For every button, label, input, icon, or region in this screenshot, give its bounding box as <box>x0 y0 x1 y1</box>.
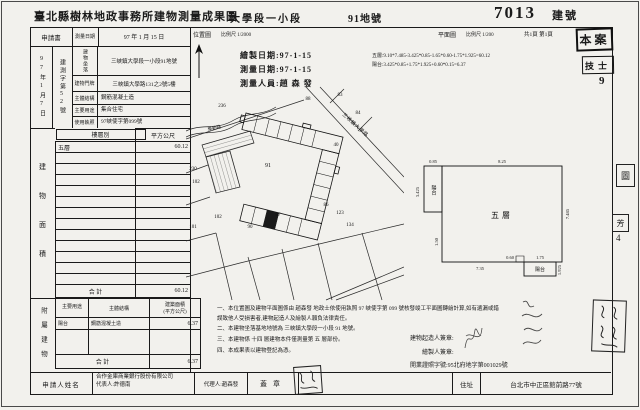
empty-cell <box>56 263 136 274</box>
application-label: 申請書 <box>30 27 73 46</box>
empty-cell <box>136 252 191 263</box>
note-2: 二、本建物坐落基地地號為 三峽鎮大學段一小段 91 地號。 <box>217 325 503 335</box>
empty-cell <box>56 153 136 164</box>
floor-plan: 五層 陽台 陽台 0.85 8.25 3.425 7.485 1.75 1.92… <box>404 144 582 284</box>
annex-use: 陽台 <box>56 318 89 330</box>
svg-text:87: 87 <box>276 213 282 218</box>
lot-number: 91地號 <box>348 10 382 25</box>
page-title: 臺北縣樹林地政事務所建物測量成果圖 <box>34 8 238 24</box>
technician-number: 9 <box>599 75 605 87</box>
office-seal-stamp <box>591 299 627 352</box>
empty-cell <box>56 230 136 241</box>
info-label: 主體結構 <box>72 92 98 104</box>
building-number: 7013 <box>494 3 536 23</box>
empty-cell <box>136 175 191 186</box>
empty-cell <box>56 219 136 230</box>
empty-cell <box>56 186 136 197</box>
empty-cell <box>56 197 136 208</box>
applicant-label: 申請人姓名 <box>30 373 93 394</box>
area-side-label: 建物面積 <box>30 128 55 298</box>
applicant-seal-stamp <box>293 365 323 395</box>
building-area-table: 樓層別 平方公尺 五層 60.12 合 計 60.12 <box>55 128 191 298</box>
parcel-boundaries <box>186 87 404 300</box>
empty-cell <box>136 263 191 274</box>
section-name: 大學段一小段 <box>230 10 302 25</box>
builder-sign-label: 建物起造人簽章: <box>410 333 454 342</box>
info-value: 鋼筋混凝土造 <box>98 92 190 104</box>
survey-date-label: 測量日期 <box>72 27 99 46</box>
svg-text:1.75: 1.75 <box>536 255 545 260</box>
document-sheet: 臺北縣樹林地政事務所建物測量成果圖 大學段一小段 91地號 7013 建號 申請… <box>0 0 640 410</box>
building-number-label: 建號 <box>552 7 578 23</box>
applicant-company-cell: 合作金庫商業銀行股份有限公司 代表人:許德南 <box>93 373 195 394</box>
svg-text:86: 86 <box>324 203 330 208</box>
drafter-seal-stamp <box>518 296 546 350</box>
applicant-company: 合作金庫商業銀行股份有限公司 <box>96 373 194 381</box>
side-road <box>186 107 276 137</box>
svg-text:134: 134 <box>346 223 354 228</box>
svg-text:1.925: 1.925 <box>557 264 562 275</box>
svg-text:84: 84 <box>356 111 362 116</box>
empty-cell <box>136 274 191 285</box>
annex-side-label: 附屬建物 <box>30 298 55 373</box>
annex-total-value: 6.37 <box>150 355 201 369</box>
floor-row-area: 60.12 <box>136 142 191 153</box>
empty-cell <box>136 153 191 164</box>
svg-text:102: 102 <box>214 215 222 220</box>
calc-floor: 五層:9.10*7.485-3.425*0.85-1.65*0.60-1.75*… <box>372 52 490 59</box>
svg-text:91: 91 <box>265 163 271 169</box>
empty-cell <box>150 330 201 355</box>
location-map-label: 位置圖 <box>193 30 211 39</box>
empty-cell <box>136 164 191 175</box>
floor-label: 五層 <box>491 211 513 220</box>
note-3: 三、本建物係 十四 層建物本件僅測量第 五 層部份。 <box>217 336 503 346</box>
info-label: 使用執照 <box>72 117 98 128</box>
svg-text:40: 40 <box>334 143 340 148</box>
svg-text:123: 123 <box>336 211 344 216</box>
svg-text:0.60: 0.60 <box>506 255 515 260</box>
intake-date: 97年1月7日 <box>33 48 51 126</box>
builder-seal-stamp <box>462 322 484 354</box>
edge-stamp-1: 圖 <box>616 164 635 187</box>
address-value: 台北市中正區館前路77號 <box>481 373 611 394</box>
location-map-scale: 比例尺 1/2000 <box>221 31 251 38</box>
empty-cell <box>136 219 191 230</box>
parking-strip-vertical <box>206 151 240 193</box>
floor-row-label: 五層 <box>56 142 136 153</box>
empty-cell <box>136 230 191 241</box>
area-total-value: 60.12 <box>136 285 191 298</box>
col-floor: 樓層別 <box>56 129 146 140</box>
applicant-representative: 代表人:許德南 <box>96 381 194 389</box>
svg-text:236: 236 <box>218 104 226 109</box>
annex-table: 主要用途 主體結構 建築面積 (平方公尺) 陽台 鋼筋混凝土造 6.37 合 計… <box>55 298 201 369</box>
col-area: 平方公尺 <box>136 129 191 142</box>
license-number: 開業證照字號:95北府地字第001029號 <box>410 360 508 369</box>
info-value: 三峽鎮大學路131之2號5樓 <box>98 76 190 91</box>
survey-date-value: 97 年 1 月 15 日 <box>98 27 190 46</box>
annex-structure: 鋼筋混凝土造 <box>89 318 150 330</box>
svg-text:7.35: 7.35 <box>476 266 485 271</box>
annex-col-area-1: 建築面積 <box>150 301 200 308</box>
empty-cell <box>56 241 136 252</box>
approval-stamp: 本案 <box>576 27 614 51</box>
seal-label: 蓋章 <box>248 373 299 394</box>
empty-cell <box>56 208 136 219</box>
drafter-sign-label: 繪製人簽章: <box>422 347 454 356</box>
svg-text:88: 88 <box>306 97 312 102</box>
info-value: 三峽鎮大學段一小段91地號 <box>98 46 190 75</box>
floor-plan-scale: 比例尺 1/200 <box>466 31 494 38</box>
balcony1-label: 陽台 <box>431 184 437 196</box>
info-label: 主要用途 <box>72 105 98 116</box>
svg-text:90: 90 <box>248 225 254 230</box>
edge-stamp-2: 芳 <box>612 214 629 232</box>
svg-text:3.425: 3.425 <box>415 186 420 197</box>
empty-cell <box>56 252 136 263</box>
intake-number: 建測字第52號 <box>53 48 71 126</box>
empty-cell <box>136 197 191 208</box>
svg-text:230: 230 <box>189 167 197 172</box>
info-label: 建物坐落 <box>72 46 98 75</box>
empty-cell <box>136 186 191 197</box>
north-arrow-icon <box>192 44 206 80</box>
info-label: 建物門牌 <box>72 76 98 91</box>
empty-cell <box>56 274 136 285</box>
svg-text:8.25: 8.25 <box>498 159 507 164</box>
info-value: 集合住宅 <box>98 105 190 116</box>
balcony2-label: 陽台 <box>535 266 545 273</box>
annex-col-use: 主要用途 <box>56 299 89 318</box>
agent-name: 代理人:趙森發 <box>195 373 248 394</box>
drawing-survey-date: 測量日期:97-1-15 <box>240 64 312 75</box>
svg-text:83: 83 <box>338 93 344 98</box>
empty-cell <box>136 208 191 219</box>
svg-text:1.50: 1.50 <box>434 237 439 246</box>
annex-col-area-2: (平方公尺) <box>150 308 200 315</box>
draw-date: 繪製日期:97-1-15 <box>240 50 312 61</box>
note-4: 四、本成果表以建物登記為憑。 <box>217 347 503 357</box>
empty-cell <box>56 164 136 175</box>
floor-plan-label: 平面圖 <box>438 30 456 39</box>
building-info: 建物坐落 三峽鎮大學段一小段91地號 建物門牌 三峽鎮大學路131之2號5樓 主… <box>72 46 190 128</box>
empty-cell <box>89 330 150 355</box>
annex-col-structure: 主體結構 <box>89 299 150 318</box>
notes-block: 一、本位置圖及建物平面圖係由 趙森發 地政士依使用執照 97 峽使字第 099 … <box>217 305 503 357</box>
svg-text:0.85: 0.85 <box>429 159 438 164</box>
area-total-label: 合 計 <box>56 285 136 298</box>
address-label: 住址 <box>453 373 481 394</box>
svg-text:102: 102 <box>192 180 200 185</box>
page-count: 共1頁 第1頁 <box>524 30 553 38</box>
svg-text:101: 101 <box>189 225 197 230</box>
site-plan: 236 230 102 101 91 88 83 84 40 86 87 90 … <box>186 86 404 302</box>
annex-area: 6.37 <box>150 318 201 330</box>
empty-cell <box>136 241 191 252</box>
annex-total-label: 合 計 <box>56 355 150 369</box>
calc-balcony: 陽台:3.425*0.85+1.75*1.925+0.60*0.15=6.37 <box>372 61 466 68</box>
empty-cell <box>56 175 136 186</box>
svg-text:7.485: 7.485 <box>565 208 570 219</box>
empty-cell <box>56 330 89 355</box>
edge-stamp-2-number: 4 <box>616 233 621 243</box>
technician-stamp: 技士 <box>582 56 614 75</box>
info-value: 97峽使字第099號 <box>98 117 190 128</box>
note-1: 一、本位置圖及建物平面圖係由 趙森發 地政士依使用執照 97 峽使字第 099 … <box>217 305 503 324</box>
